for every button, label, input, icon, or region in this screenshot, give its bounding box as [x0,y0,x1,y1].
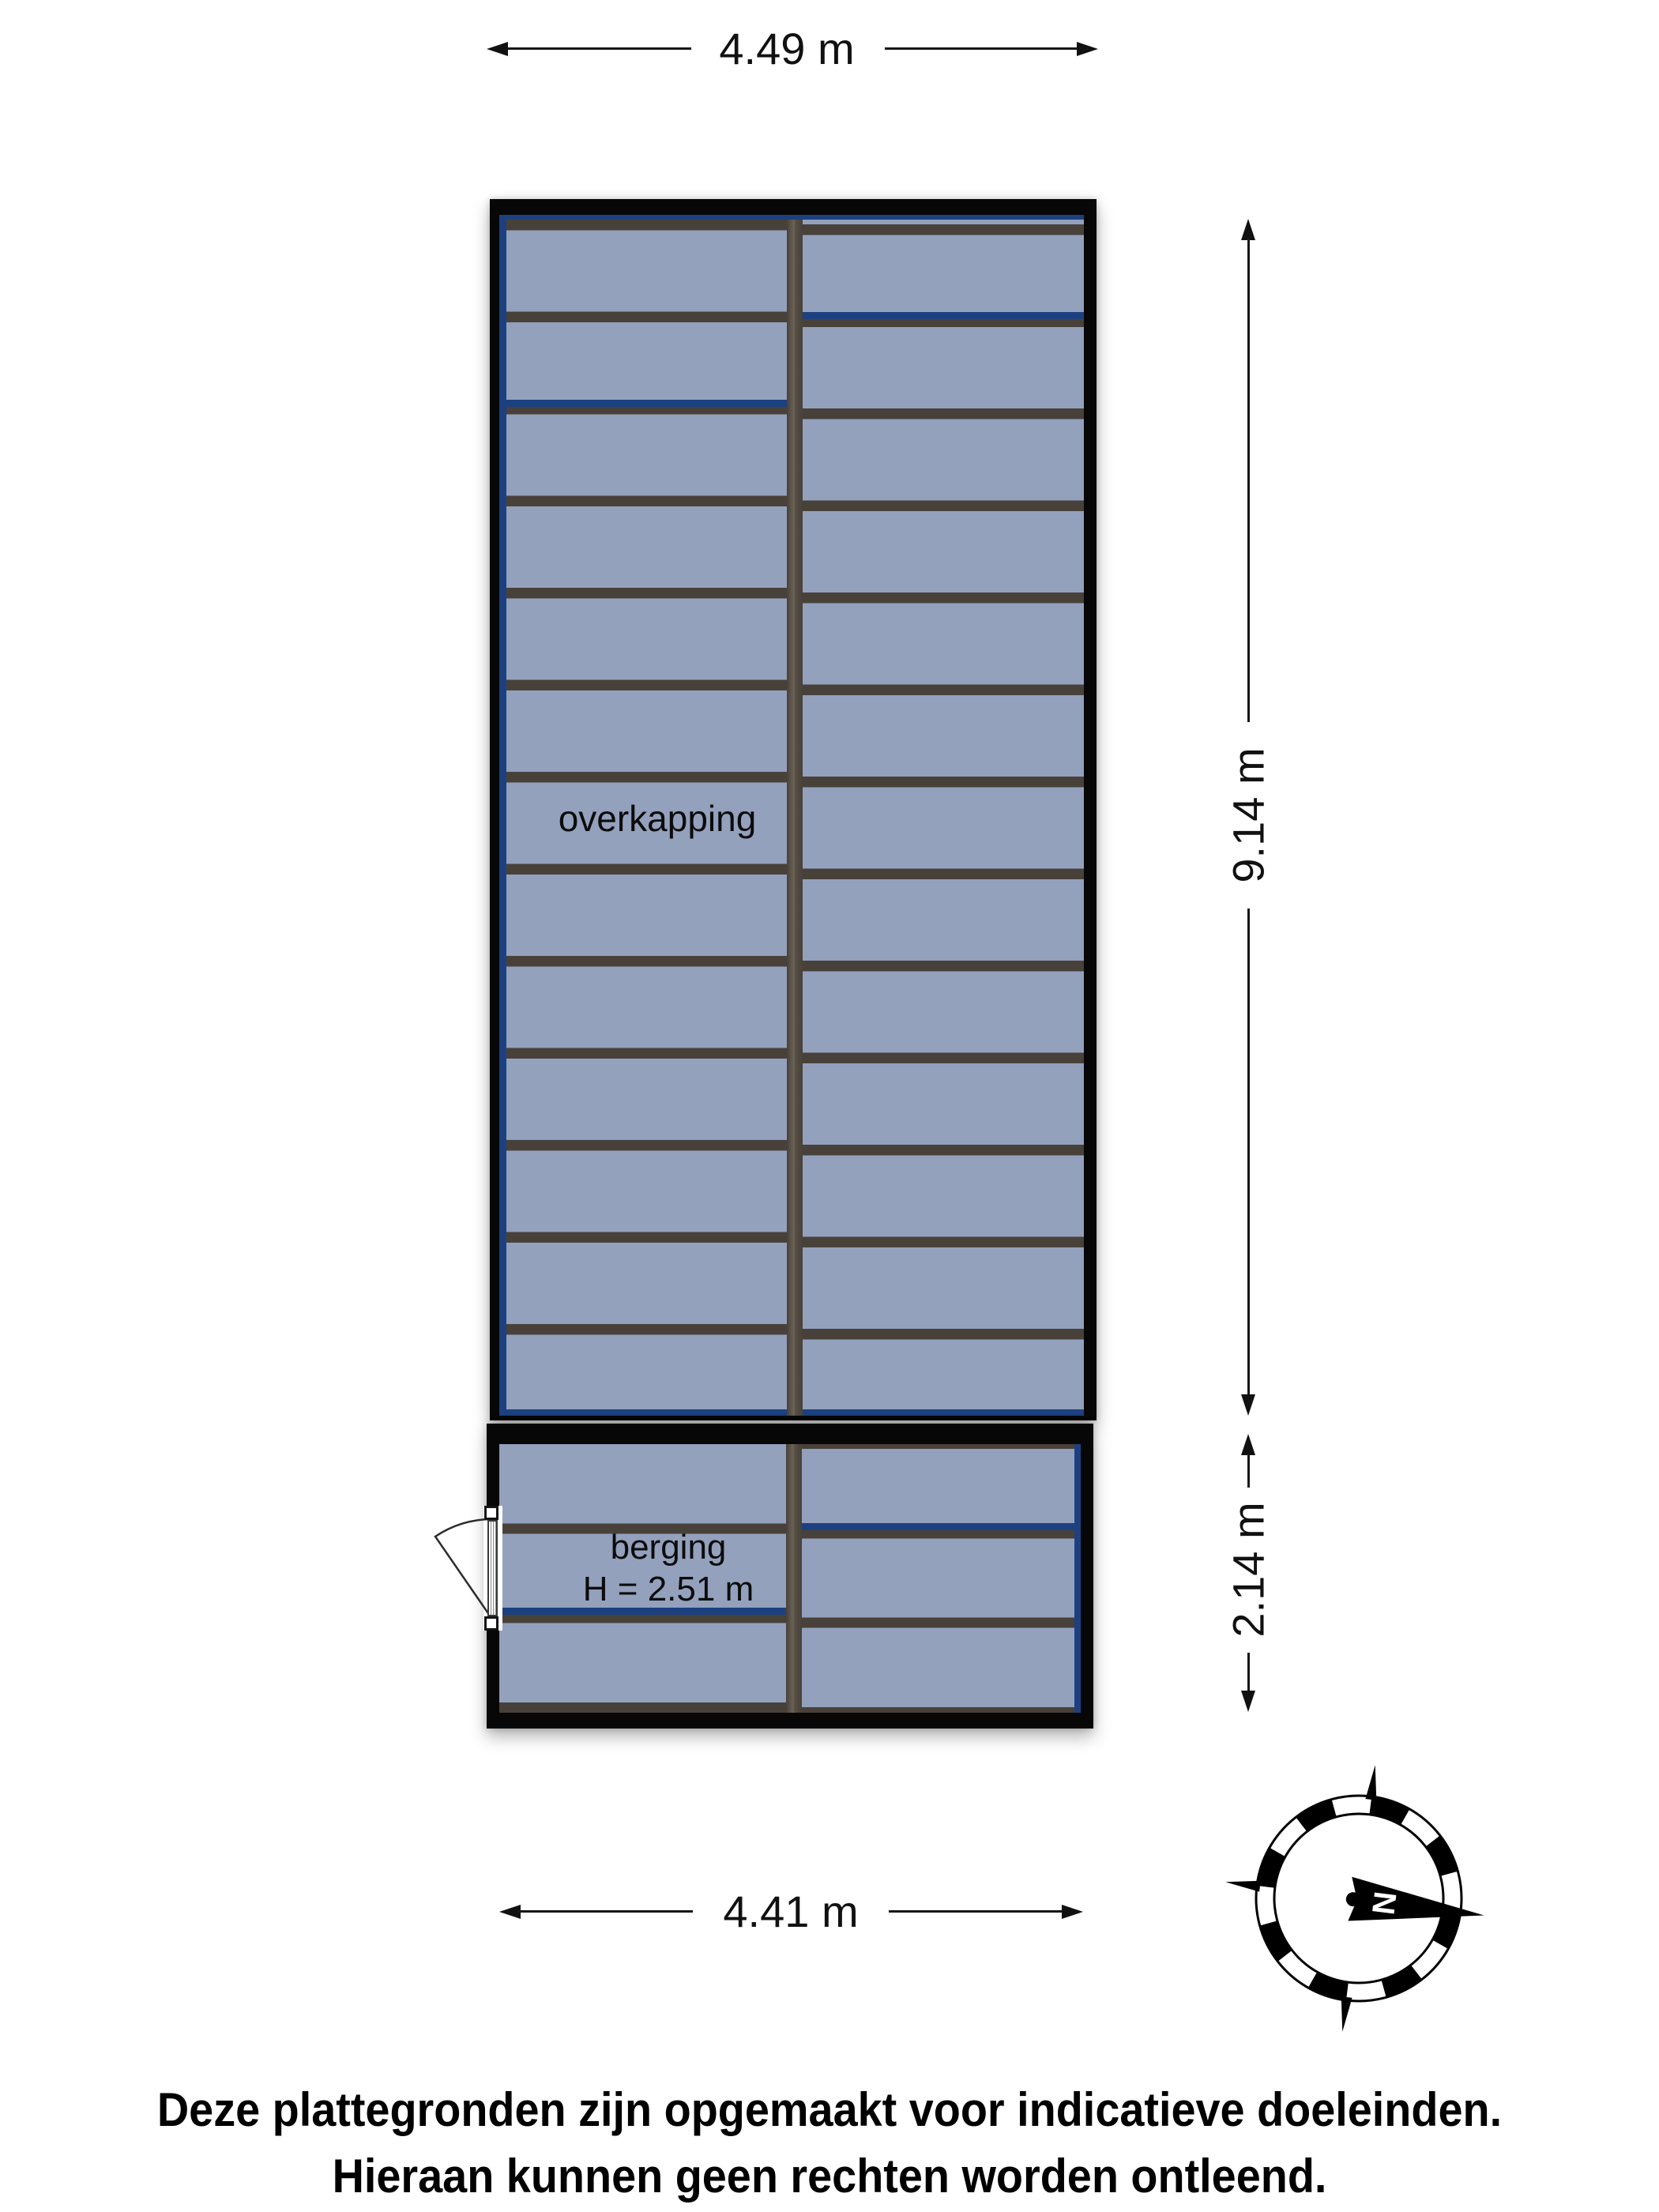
navy-accent-line [803,312,1084,319]
door-leaf [487,1520,498,1616]
navy-right-strip [1074,1444,1081,1713]
dimension-line [517,1910,693,1913]
arrow-left-icon [487,42,508,56]
navy-accent-line [802,1523,1081,1530]
compass-spike-north [1365,1764,1380,1800]
dimension-line [1247,1453,1250,1488]
dimension-line [1247,1653,1250,1692]
arrow-down-icon [1241,1691,1255,1712]
door-jamb-bottom [484,1616,498,1631]
floorplan-canvas: 4.49 m overkapping [0,0,1659,2212]
door-jamb-top [484,1506,498,1520]
room-label-overkapping: overkapping [515,798,799,839]
dimension-line [504,47,691,50]
dimension-line [1247,238,1250,722]
navy-accent-line [803,1409,1084,1416]
disclaimer-line-2: Hieraan kunnen geen rechten worden ontle… [58,2149,1601,2203]
dimension-label-bottom: 4.41 m [704,1886,878,1937]
dimension-line [1247,908,1250,1398]
berging-height: H = 2.51 m [526,1568,811,1610]
navy-left-strip [499,215,506,1416]
arrow-up-icon [1241,219,1255,240]
roof-panels-right-column [803,220,1084,1416]
dimension-line [885,47,1081,50]
compass-spike-south [1337,1996,1352,2032]
navy-accent-line [506,1409,787,1416]
door-swing-arc [348,1499,506,1635]
berging-panels-right-column [802,1444,1081,1713]
compass-north-label: N [1365,1890,1402,1917]
dimension-label-top: 4.49 m [700,23,874,74]
dimension-line [889,1910,1064,1913]
dimension-label-side-sub: 2.14 m [1223,1502,1274,1637]
compass-rose: N [1201,1740,1517,2056]
compass-spike-west [1224,1876,1260,1891]
room-label-berging: berging H = 2.51 m [526,1526,811,1610]
arrow-up-icon [1241,1434,1255,1455]
disclaimer-line-1: Deze plattegronden zijn opgemaakt voor i… [58,2082,1601,2137]
arrow-down-icon [1241,1394,1255,1416]
berging-name: berging [526,1526,811,1568]
dimension-label-side-main: 9.14 m [1223,747,1274,882]
arrow-right-icon [1062,1905,1083,1919]
navy-accent-line [506,400,787,407]
arrow-right-icon [1077,42,1098,56]
